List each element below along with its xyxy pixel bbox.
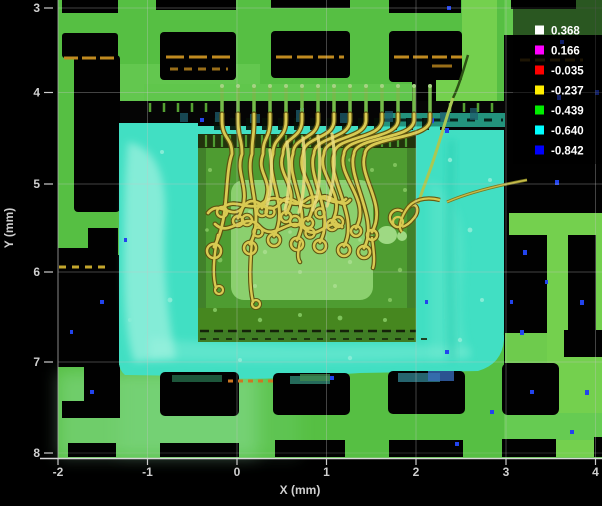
svg-text:-0.640: -0.640 bbox=[551, 126, 584, 138]
svg-text:2: 2 bbox=[413, 465, 420, 479]
svg-text:8: 8 bbox=[33, 446, 40, 460]
svg-text:-2: -2 bbox=[53, 465, 64, 479]
svg-text:4: 4 bbox=[592, 465, 599, 479]
svg-text:7: 7 bbox=[33, 355, 40, 369]
svg-text:1: 1 bbox=[323, 465, 330, 479]
svg-text:-0.842: -0.842 bbox=[551, 146, 584, 158]
svg-text:3: 3 bbox=[33, 1, 40, 15]
svg-text:0.166: 0.166 bbox=[551, 46, 580, 58]
svg-text:-1: -1 bbox=[142, 465, 153, 479]
svg-text:Y (mm): Y (mm) bbox=[2, 208, 16, 248]
svg-text:-0.439: -0.439 bbox=[551, 106, 584, 118]
svg-text:4: 4 bbox=[33, 86, 40, 100]
svg-text:-0.035: -0.035 bbox=[551, 66, 584, 78]
svg-text:-0.237: -0.237 bbox=[551, 86, 584, 98]
svg-text:0.368: 0.368 bbox=[551, 26, 580, 38]
svg-text:X (mm): X (mm) bbox=[280, 483, 321, 497]
svg-text:0: 0 bbox=[234, 465, 241, 479]
svg-text:5: 5 bbox=[33, 177, 40, 191]
svg-text:3: 3 bbox=[503, 465, 510, 479]
svg-text:6: 6 bbox=[33, 265, 40, 279]
